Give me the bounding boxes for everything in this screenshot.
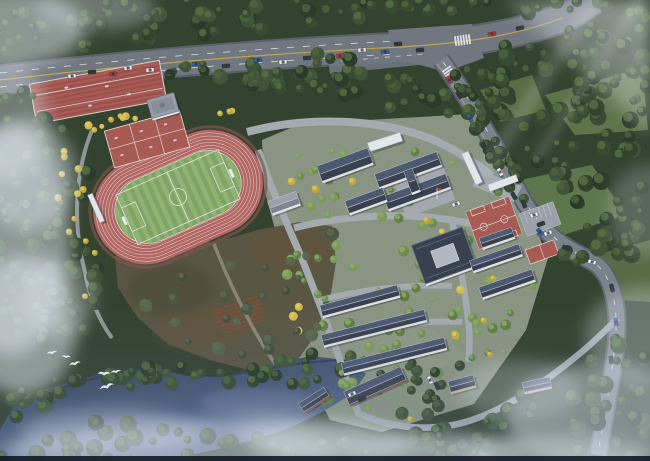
scene-canvas (0, 0, 650, 461)
cloud (460, 360, 580, 420)
cloud (20, 258, 96, 338)
atmosphere (0, 0, 650, 461)
bottom-border (0, 456, 650, 461)
cloud (20, 408, 200, 456)
aerial-rendering (0, 0, 650, 461)
